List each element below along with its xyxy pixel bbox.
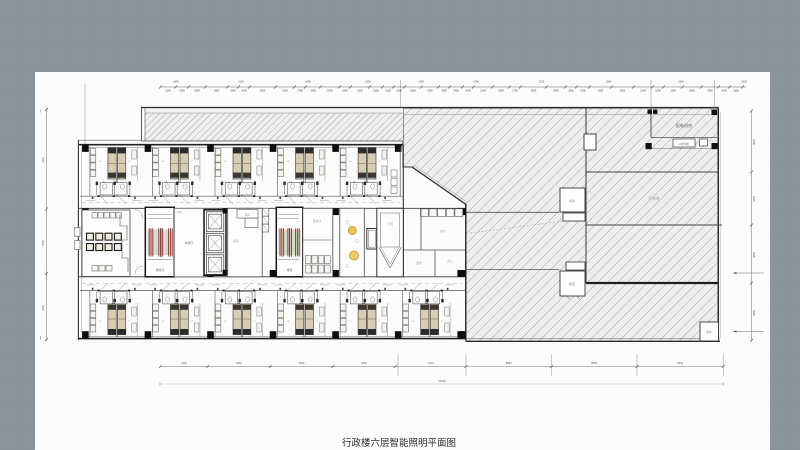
svg-text:1500: 1500 <box>531 90 537 93</box>
svg-text:2100: 2100 <box>165 90 171 93</box>
svg-text:2400: 2400 <box>418 81 424 84</box>
svg-text:1800: 1800 <box>173 81 179 84</box>
svg-text:1500: 1500 <box>327 90 333 93</box>
svg-text:1500: 1500 <box>179 90 185 93</box>
svg-text:5300: 5300 <box>753 196 756 202</box>
svg-text:3300: 3300 <box>741 81 747 84</box>
svg-text:1760: 1760 <box>473 81 479 84</box>
svg-text:2100: 2100 <box>640 90 646 93</box>
svg-text:7800: 7800 <box>42 305 45 311</box>
svg-text:6250: 6250 <box>361 361 367 365</box>
svg-text:1800: 1800 <box>689 90 695 93</box>
svg-text:6000: 6000 <box>753 139 756 145</box>
svg-text:1500: 1500 <box>373 90 379 93</box>
svg-text:电梯厅: 电梯厅 <box>184 240 193 245</box>
svg-text:6250: 6250 <box>299 361 305 365</box>
svg-text:1800: 1800 <box>214 90 220 93</box>
svg-text:1500: 1500 <box>721 90 727 93</box>
svg-text:3300: 3300 <box>310 90 316 93</box>
svg-text:8650: 8650 <box>677 361 683 365</box>
svg-text:茶水间: 茶水间 <box>313 219 322 223</box>
svg-text:行政楼六层智能照明平面图: 行政楼六层智能照明平面图 <box>342 437 456 449</box>
svg-text:前室: 前室 <box>569 281 575 286</box>
svg-text:1500: 1500 <box>678 81 684 84</box>
svg-text:1500: 1500 <box>465 90 471 93</box>
svg-text:6250: 6250 <box>236 361 242 365</box>
svg-text:2400: 2400 <box>453 90 459 93</box>
svg-text:3300: 3300 <box>498 90 504 93</box>
svg-text:2400: 2400 <box>707 90 713 93</box>
svg-text:3300: 3300 <box>357 90 363 93</box>
svg-text:2100: 2100 <box>385 90 391 93</box>
svg-text:1760: 1760 <box>512 90 518 93</box>
svg-text:汽车库: 汽车库 <box>648 195 660 201</box>
svg-text:楼梯间: 楼梯间 <box>156 268 165 272</box>
svg-text:3300: 3300 <box>194 90 200 93</box>
svg-text:8550: 8550 <box>591 361 597 365</box>
svg-text:3300: 3300 <box>620 90 626 93</box>
svg-text:1500: 1500 <box>241 90 247 93</box>
svg-text:3300: 3300 <box>670 90 676 93</box>
svg-text:3300: 3300 <box>441 90 447 93</box>
svg-text:2640: 2640 <box>305 81 311 84</box>
svg-text:备品: 备品 <box>245 212 250 216</box>
svg-text:2400: 2400 <box>230 90 236 93</box>
svg-text:3300: 3300 <box>733 90 739 93</box>
svg-text:风井: 风井 <box>706 330 712 334</box>
svg-text:楼梯: 楼梯 <box>287 268 293 272</box>
svg-text:6200: 6200 <box>42 240 45 246</box>
svg-text:7100: 7100 <box>428 361 434 365</box>
svg-text:1800: 1800 <box>410 90 416 93</box>
svg-text:2100: 2100 <box>539 81 545 84</box>
svg-text:56400: 56400 <box>438 379 446 383</box>
svg-text:风井: 风井 <box>569 198 575 203</box>
svg-text:5800: 5800 <box>753 252 756 258</box>
svg-text:3300: 3300 <box>396 90 402 93</box>
svg-text:3300: 3300 <box>365 81 371 84</box>
svg-text:1500: 1500 <box>606 81 612 84</box>
svg-text:4700: 4700 <box>181 361 187 365</box>
svg-text:2640: 2640 <box>553 90 559 93</box>
svg-text:3300: 3300 <box>568 90 574 93</box>
svg-text:空调: 空调 <box>387 222 393 226</box>
svg-text:2640: 2640 <box>342 90 348 93</box>
svg-text:1500: 1500 <box>427 90 433 93</box>
svg-text:办公: 办公 <box>447 259 453 263</box>
svg-text:7800: 7800 <box>42 157 45 163</box>
svg-text:2100: 2100 <box>238 81 244 84</box>
svg-text:1500: 1500 <box>598 90 604 93</box>
svg-text:5800: 5800 <box>753 310 756 316</box>
svg-text:办公: 办公 <box>440 228 446 233</box>
svg-text:配电机房: 配电机房 <box>676 122 693 129</box>
svg-text:1500: 1500 <box>655 90 661 93</box>
svg-text:2100: 2100 <box>580 90 586 93</box>
svg-text:1#配电柜: 1#配电柜 <box>679 142 690 146</box>
svg-text:库房: 库房 <box>233 239 239 243</box>
svg-text:8550: 8550 <box>506 361 512 365</box>
svg-text:3300: 3300 <box>260 90 266 93</box>
svg-text:会议: 会议 <box>416 261 422 265</box>
svg-text:2100: 2100 <box>480 90 486 93</box>
svg-text:1760: 1760 <box>297 90 303 93</box>
svg-text:2100: 2100 <box>282 90 288 93</box>
